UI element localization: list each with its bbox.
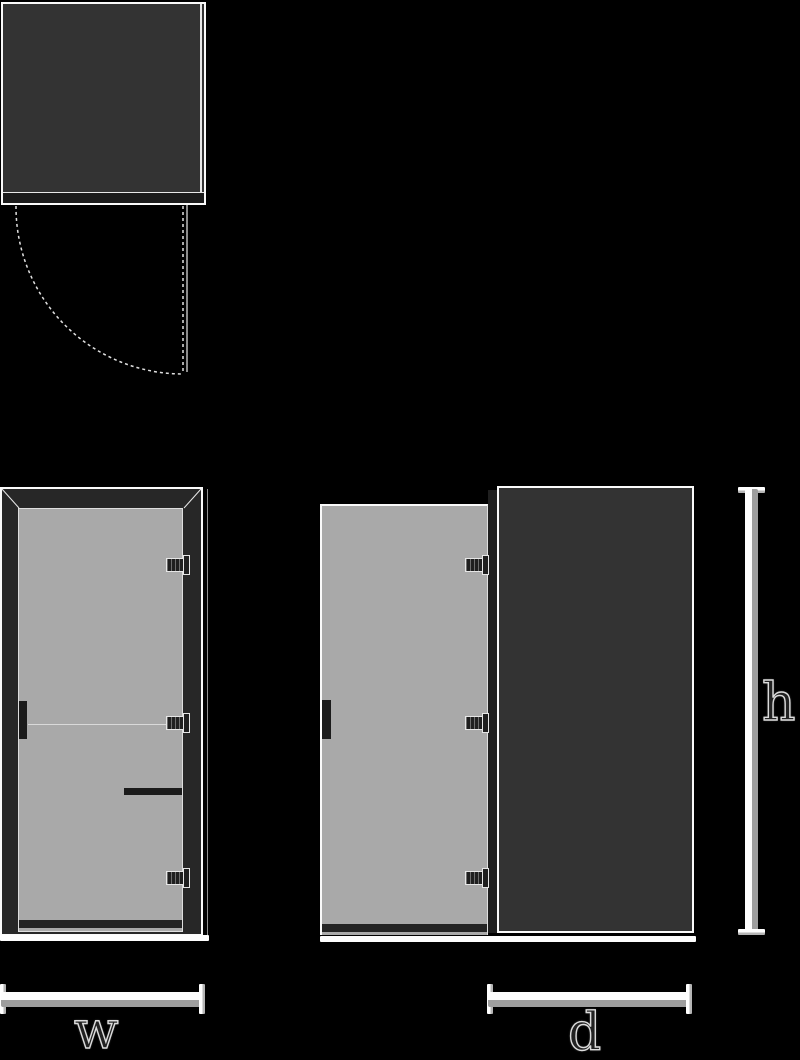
dim-cap xyxy=(738,929,765,935)
front-glass-panel xyxy=(18,508,183,932)
hinge-icon-side-middle xyxy=(465,713,489,733)
side-return-panel xyxy=(497,486,694,933)
side-glass-panel xyxy=(320,504,488,935)
hinge-cap xyxy=(183,713,190,733)
door-swing-dashed-arc-icon xyxy=(0,204,200,380)
plan-right-profile-line xyxy=(200,4,202,202)
towel-bar-handle xyxy=(124,788,182,795)
hinge-body xyxy=(465,871,483,885)
front-threshold-bar xyxy=(19,920,182,928)
hinge-body xyxy=(465,716,483,730)
door-handle-side xyxy=(322,700,331,739)
hinge-cap xyxy=(482,713,489,733)
hinge-body xyxy=(465,558,483,572)
width-label: w xyxy=(74,1005,119,1057)
plan-door-closed-bar xyxy=(3,192,204,203)
side-threshold-bar xyxy=(322,924,487,932)
hinge-icon-side-top xyxy=(465,555,489,575)
hinge-icon-front-middle xyxy=(166,713,190,733)
dim-cap xyxy=(199,984,205,1014)
hinge-body xyxy=(166,716,184,730)
hinge-icon-front-bottom xyxy=(166,868,190,888)
hinge-body xyxy=(166,871,184,885)
hinge-cap xyxy=(482,555,489,575)
hinge-icon-front-top xyxy=(166,555,190,575)
depth-label: d xyxy=(568,1007,601,1059)
plan-view-enclosure xyxy=(1,2,206,205)
hinge-icon-side-bottom xyxy=(465,868,489,888)
hinge-body xyxy=(166,558,184,572)
door-handle-front xyxy=(19,701,27,739)
hinge-cap xyxy=(183,868,190,888)
hinge-cap xyxy=(482,868,489,888)
height-label: h xyxy=(762,677,796,729)
front-base-line xyxy=(0,935,209,941)
glass-seam-line xyxy=(28,724,182,725)
technical-drawing-canvas: w d h xyxy=(0,0,800,1060)
dim-bar xyxy=(745,489,758,933)
dim-cap xyxy=(686,984,692,1014)
hinge-cap xyxy=(183,555,190,575)
side-base-line xyxy=(320,936,696,942)
front-wall-profile-line xyxy=(207,489,208,935)
side-hinge-profile xyxy=(488,490,497,933)
